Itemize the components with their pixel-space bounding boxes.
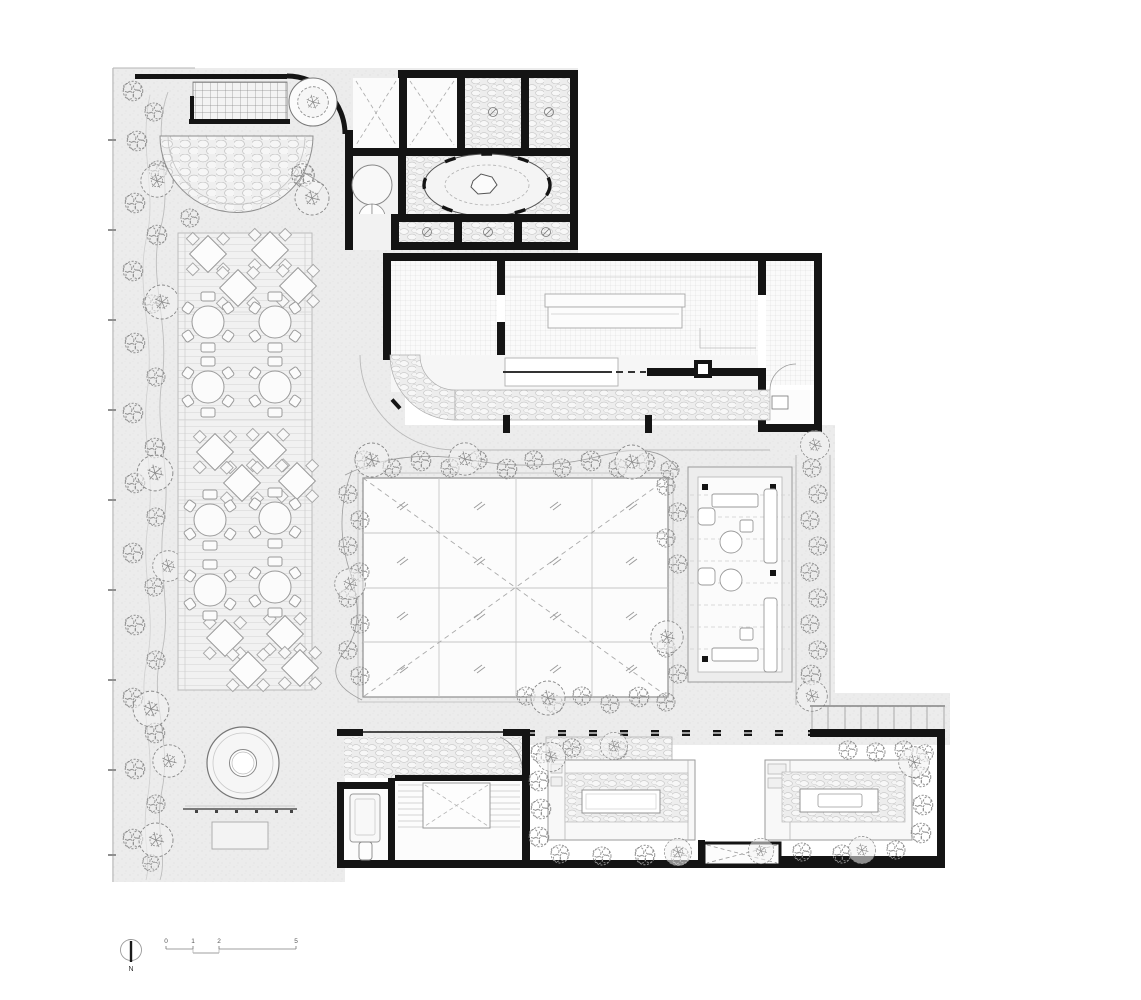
service-corridor: [391, 355, 758, 392]
pebble-corridor: [344, 737, 522, 778]
central-canopy: [358, 473, 673, 702]
north-label: N: [128, 966, 133, 973]
scale-label-5: 5: [294, 938, 298, 945]
planter-box: [212, 822, 268, 849]
circular-fountain: [207, 727, 279, 799]
terrace-wall-top: [135, 74, 287, 79]
bar-counter-lower: [548, 307, 682, 328]
courtyard-pool-west: [582, 790, 660, 813]
site-plan-drawing: N 0 1 2 5: [0, 0, 1141, 1000]
spa-building: [345, 70, 578, 250]
trellis-canopy: [189, 82, 290, 124]
stair-room: [395, 781, 522, 860]
garden-courtyard-west: [529, 732, 705, 868]
spa-rooms-top: [353, 70, 570, 148]
main-hall-building: [360, 253, 822, 450]
floor-plan-page: N 0 1 2 5: [0, 0, 1141, 1000]
lounge-pavilion: [688, 467, 792, 682]
scale-label-2: 2: [217, 938, 221, 945]
wc-room: [344, 789, 388, 860]
hall-west-room: [391, 261, 505, 358]
oval-courtyard: [424, 154, 550, 216]
north-arrow: N: [121, 940, 142, 974]
entry-tree-planter: [289, 78, 337, 126]
scale-bar: 0 1 2 5: [164, 938, 298, 953]
scale-label-1: 1: [191, 938, 195, 945]
stair-building: [337, 729, 530, 868]
garden-courtyard-east: [698, 729, 945, 868]
scale-label-0: 0: [164, 938, 168, 945]
hall-main-space: [505, 261, 758, 355]
bar-counter-upper: [545, 294, 685, 307]
